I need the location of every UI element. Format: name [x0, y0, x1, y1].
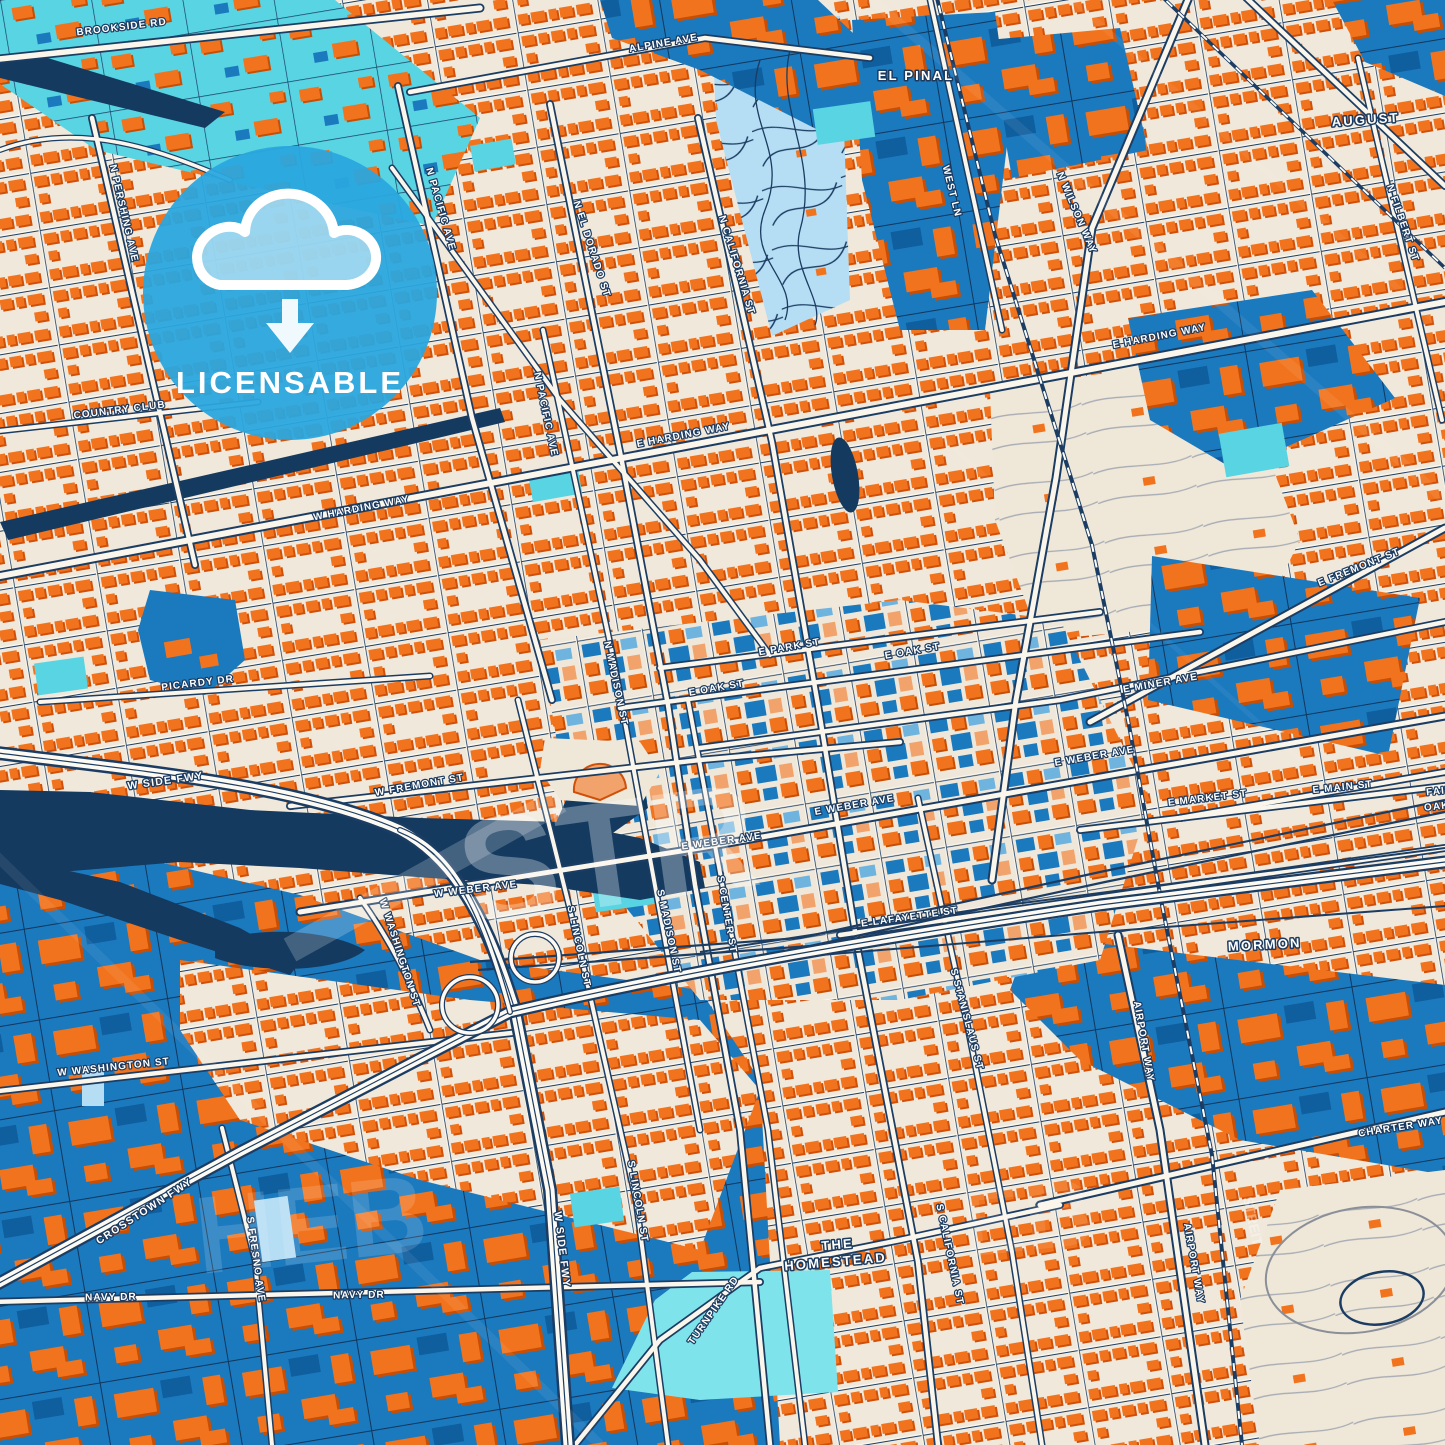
watermark-text: EB — [955, 1159, 1097, 1278]
street-label: FAIR — [1426, 785, 1445, 799]
park-small-7 — [570, 1187, 624, 1228]
locality-label: EL PINAL — [878, 68, 955, 83]
locality-label: THE — [821, 1236, 855, 1254]
street-label: OAKS — [1424, 799, 1445, 813]
map-poster: BROOKSIDE RDALPINE AVEEL PINALAUGUSTN PE… — [0, 0, 1445, 1445]
badge-label: LICENSABLE — [176, 365, 404, 400]
map-canvas: BROOKSIDE RDALPINE AVEEL PINALAUGUSTN PE… — [0, 0, 1445, 1445]
street-label: NAVY DR — [333, 1290, 385, 1302]
watermark-text: HEB — [189, 1151, 433, 1298]
street-label: NAVY DR — [85, 1292, 137, 1304]
licensable-badge[interactable]: LICENSABLE — [143, 146, 437, 440]
